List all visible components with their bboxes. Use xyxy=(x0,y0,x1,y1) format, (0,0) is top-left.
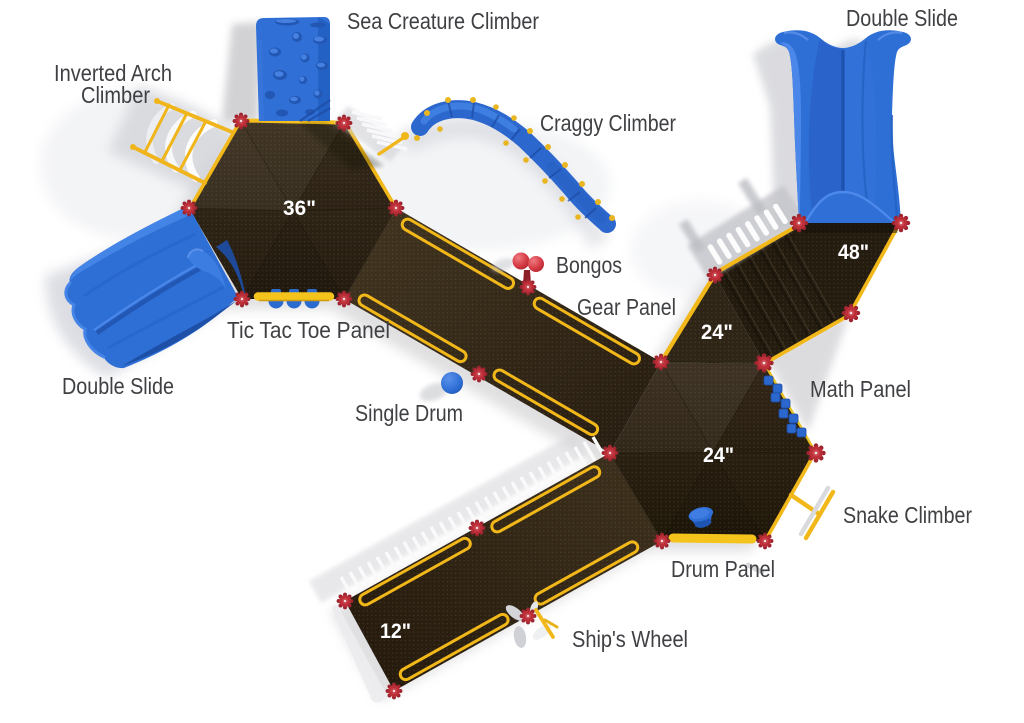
svg-text:Sea Creature Climber: Sea Creature Climber xyxy=(347,8,539,34)
svg-text:Snake Climber: Snake Climber xyxy=(843,502,972,528)
svg-text:36": 36" xyxy=(283,196,316,220)
svg-text:Double Slide: Double Slide xyxy=(62,373,174,399)
svg-text:48": 48" xyxy=(838,240,869,264)
svg-text:Drum Panel: Drum Panel xyxy=(671,556,775,582)
svg-text:Ship's Wheel: Ship's Wheel xyxy=(572,626,688,652)
svg-text:12": 12" xyxy=(380,619,411,643)
svg-text:Bongos: Bongos xyxy=(556,252,622,278)
svg-text:Math Panel: Math Panel xyxy=(810,376,911,402)
svg-text:Single Drum: Single Drum xyxy=(355,400,463,426)
svg-text:Tic Tac Toe Panel: Tic Tac Toe Panel xyxy=(227,317,390,343)
svg-text:Gear Panel: Gear Panel xyxy=(577,294,676,320)
svg-text:Double Slide: Double Slide xyxy=(846,5,958,31)
svg-text:Climber: Climber xyxy=(81,82,150,108)
svg-text:Craggy Climber: Craggy Climber xyxy=(540,110,676,136)
svg-text:24": 24" xyxy=(703,443,734,467)
svg-text:24": 24" xyxy=(701,320,733,344)
